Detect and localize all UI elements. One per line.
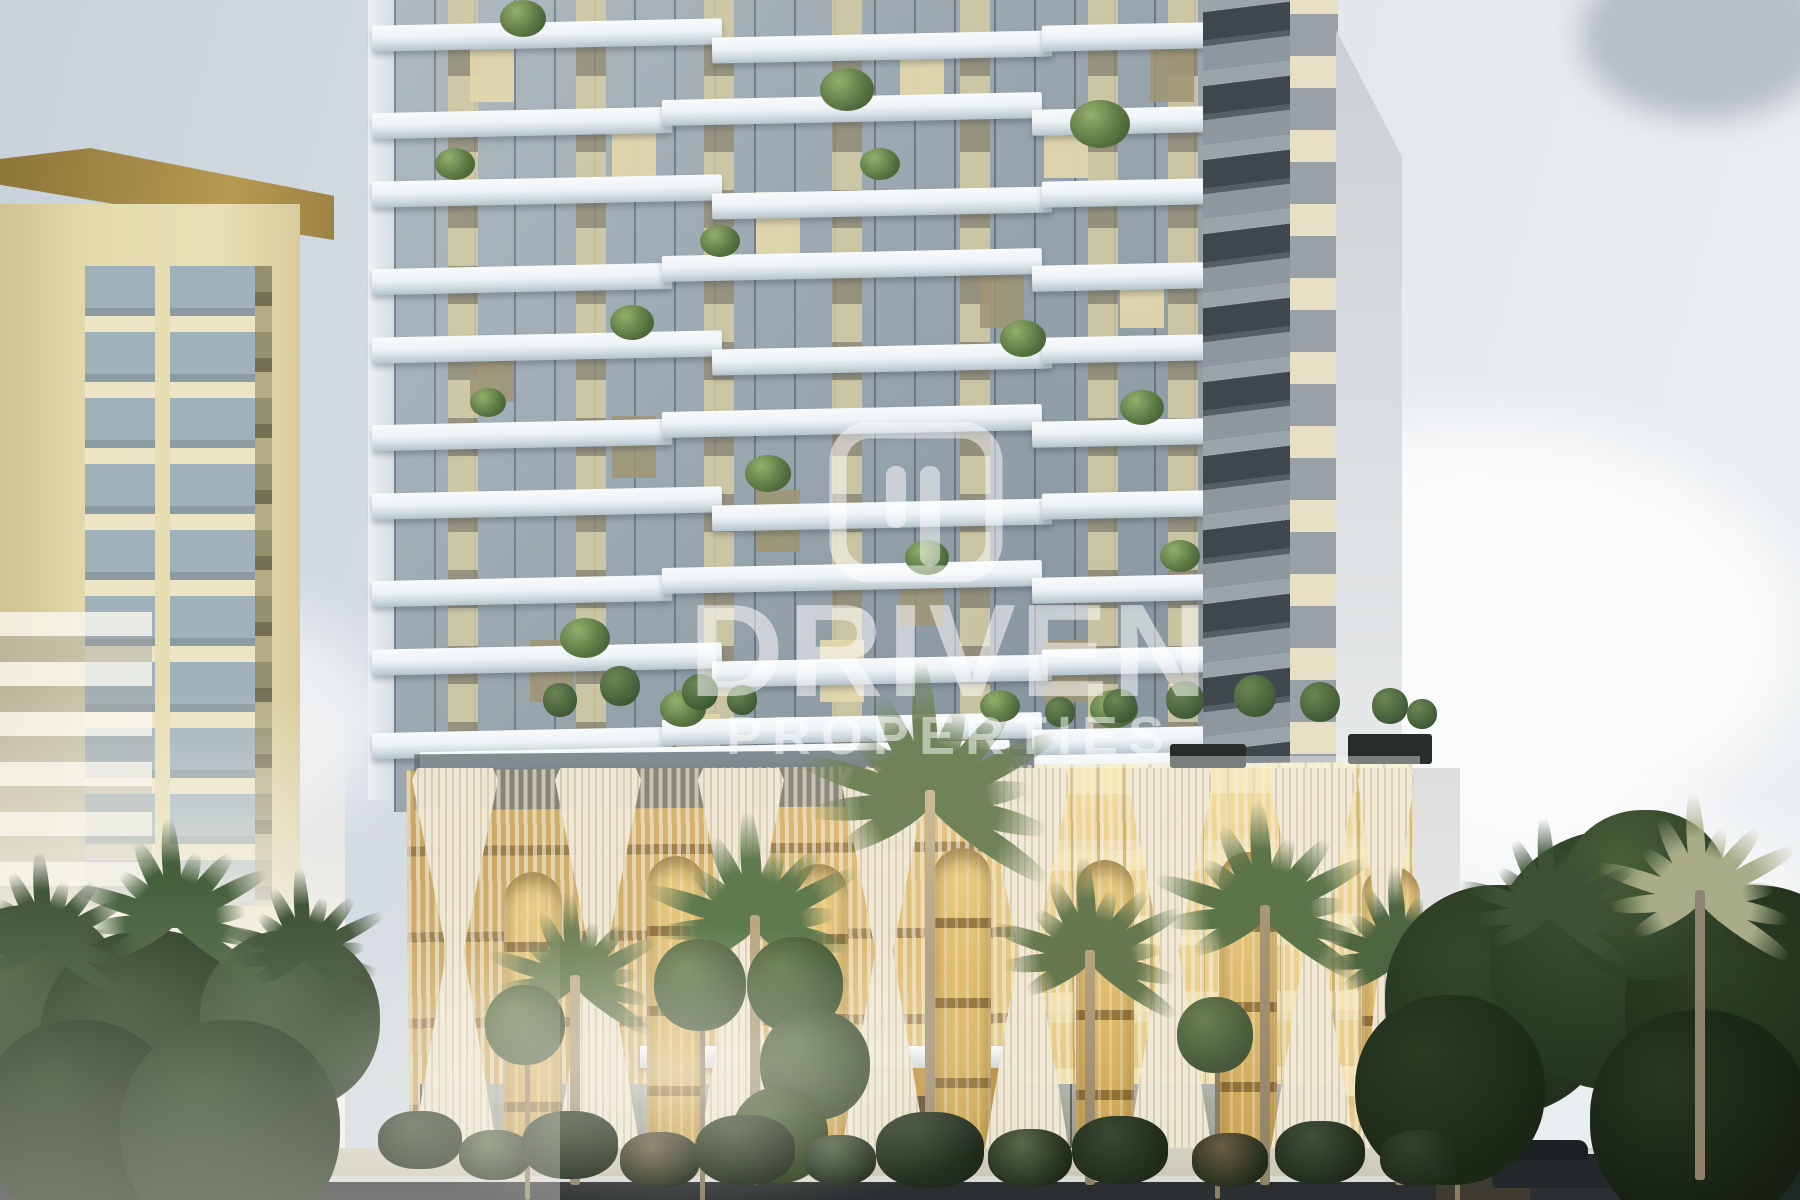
wing-balcony [1203, 60, 1293, 145]
bush [1380, 1130, 1460, 1186]
roof-tree [1234, 675, 1276, 717]
palm-trunk [1695, 890, 1705, 1180]
wing-balcony [1203, 504, 1293, 589]
balcony-shrub [610, 305, 654, 340]
roof-tree [727, 685, 757, 715]
balcony-shrub [745, 455, 791, 492]
balcony-shrub [905, 540, 949, 575]
wing-balcony [1203, 282, 1293, 367]
roof-tree [1372, 688, 1408, 724]
balcony-shrub [1160, 540, 1200, 572]
roof-tree [1166, 681, 1204, 719]
street-tree [1177, 997, 1253, 1073]
right-wing-balconies [1203, 0, 1293, 782]
balcony-band [1042, 22, 1205, 51]
roof-tree [1045, 697, 1075, 727]
balcony-band [1032, 574, 1205, 604]
palm-crown [1535, 890, 1565, 920]
balcony-shrub [1120, 390, 1164, 425]
balcony-band [1032, 262, 1205, 292]
balcony-shrub [820, 68, 874, 111]
wing-balcony [1203, 134, 1293, 219]
balcony-shrub [1000, 320, 1046, 357]
right-wing-cells [1290, 0, 1338, 770]
roof-tree [682, 674, 718, 710]
architectural-render: DRIVEN PROPERTIES [0, 0, 1800, 1200]
wing-balcony [1203, 356, 1293, 441]
balcony-shrub [470, 388, 506, 417]
bush [1275, 1121, 1365, 1184]
balcony-band [1042, 334, 1205, 363]
right-wing-side-wall [1336, 30, 1402, 774]
balcony-band [1042, 646, 1205, 675]
balcony-band [1032, 418, 1205, 448]
balcony-band [1042, 178, 1205, 207]
roof-tree [1407, 699, 1437, 729]
balcony-shrub [700, 225, 740, 257]
facade-cream-panel [980, 266, 1024, 328]
balcony-shrub [860, 148, 900, 180]
roof-tree [1300, 682, 1340, 722]
roof-tree [543, 683, 577, 717]
wing-balcony [1203, 0, 1293, 72]
balcony-shrub [1070, 100, 1130, 148]
roof-railing [1040, 756, 1420, 768]
sun-haze [0, 880, 560, 1200]
balcony-shrub [500, 0, 546, 37]
roof-tree [600, 666, 640, 706]
balcony-shrub [560, 618, 610, 658]
wing-balcony [1203, 430, 1293, 515]
wing-balcony [1203, 578, 1293, 663]
roof-tree [1103, 689, 1137, 723]
bush [988, 1129, 1072, 1188]
wing-balcony [1203, 208, 1293, 293]
balcony-shrub [435, 148, 475, 180]
bush [1192, 1133, 1268, 1186]
balcony-band [1042, 490, 1205, 519]
bush [1072, 1116, 1168, 1183]
